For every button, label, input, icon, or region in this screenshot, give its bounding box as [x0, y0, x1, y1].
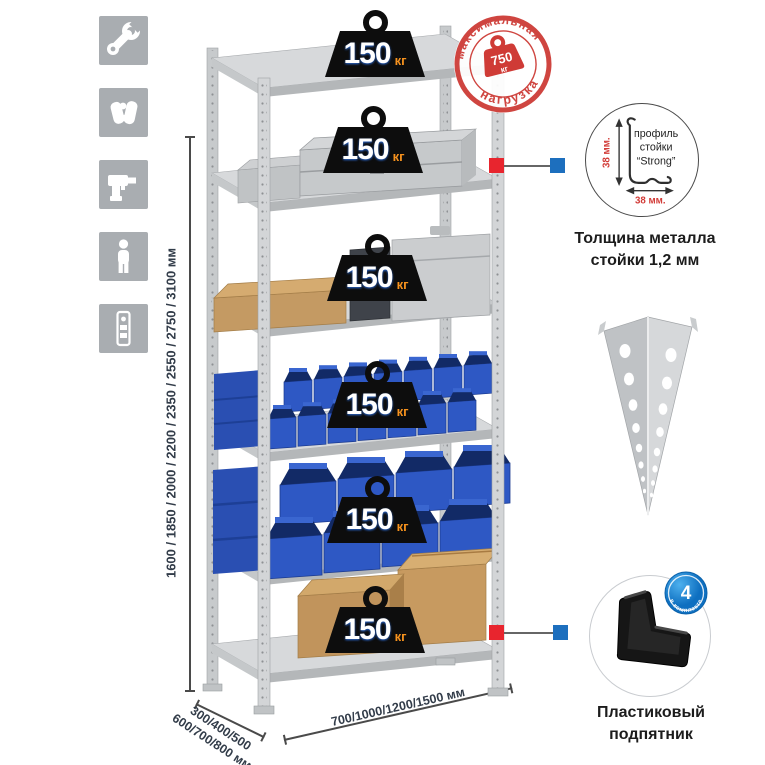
profile-label: профиль стойки “Strong” — [634, 128, 679, 167]
profile-detail-circle: 38 мм. 38 мм. профиль стойки “Strong” — [585, 103, 699, 217]
profile-label-line1: профиль — [634, 128, 679, 140]
shelf-load-badge: 150 кг — [327, 361, 427, 428]
upright-back-left — [207, 48, 218, 688]
profile-dim-height: 38 мм. — [601, 137, 612, 168]
load-unit: кг — [395, 629, 407, 644]
callout-line-bottom — [503, 632, 554, 634]
load-unit: кг — [397, 519, 409, 534]
load-value: 150 — [346, 261, 393, 295]
load-unit: кг — [397, 277, 409, 292]
weight-plate-icon: 150 кг — [327, 255, 427, 301]
profile-width-arrow — [627, 188, 673, 194]
profile-label-line2: стойки — [640, 142, 673, 154]
included-count-badge: 4 в комплекте — [663, 570, 709, 621]
callout-blue-marker-top — [550, 158, 565, 173]
load-value: 150 — [346, 388, 393, 422]
load-unit: кг — [395, 53, 407, 68]
shelf-load-badge: 150 кг — [325, 10, 425, 77]
load-value: 150 — [344, 37, 391, 71]
callout-red-marker-top — [489, 158, 504, 173]
upright-front-left — [258, 78, 270, 710]
load-unit: кг — [397, 404, 409, 419]
product-infographic: 1600 / 1850 / 2000 / 2200 / 2350 / 2550 … — [0, 0, 765, 765]
load-unit: кг — [393, 149, 405, 164]
shelf-load-badge: 150 кг — [323, 106, 423, 173]
callout-line-top — [503, 165, 551, 167]
shelf-load-badge: 150 кг — [325, 586, 425, 653]
profile-height-arrow — [616, 120, 622, 185]
profile-dim-width: 38 мм. — [635, 195, 666, 206]
upright-front-right — [492, 56, 504, 692]
shelf-load-badge: 150 кг — [327, 476, 427, 543]
weight-plate-icon: 150 кг — [327, 382, 427, 428]
weight-plate-icon: 150 кг — [325, 31, 425, 77]
shelf-load-badge: 150 кг — [327, 234, 427, 301]
weight-plate-icon: 150 кг — [325, 607, 425, 653]
load-value: 150 — [342, 133, 389, 167]
weight-plate-icon: 150 кг — [327, 497, 427, 543]
weight-plate-icon: 150 кг — [323, 127, 423, 173]
load-value: 150 — [346, 503, 393, 537]
callout-blue-marker-bottom — [553, 625, 568, 640]
badge-count: 4 — [681, 583, 692, 604]
callout-red-marker-bottom — [489, 625, 504, 640]
load-value: 150 — [344, 613, 391, 647]
profile-label-line3: “Strong” — [637, 155, 676, 167]
